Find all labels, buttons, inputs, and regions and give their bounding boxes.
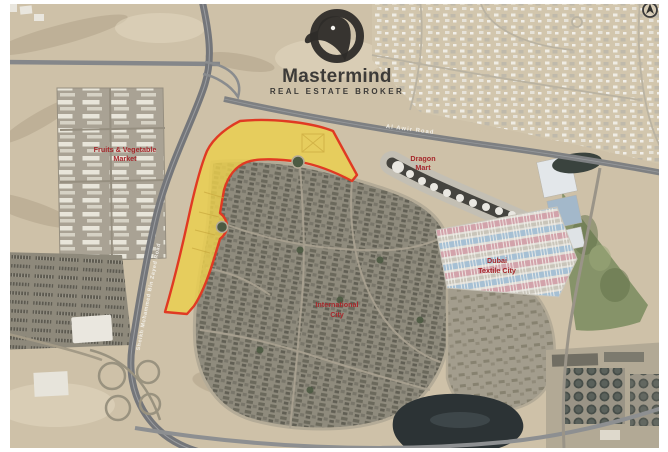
- label-international-city-line1: International: [315, 300, 358, 309]
- brand-name: Mastermind: [282, 66, 392, 87]
- brand-tagline: REAL ESTATE BROKER: [270, 87, 404, 96]
- brand-text: Mastermind REAL ESTATE BROKER: [270, 66, 404, 96]
- real-estate-map-image: Al Awir Road Sheikh Mohammed Bin Zayed R…: [0, 0, 668, 452]
- label-textile-city-line2: Textile City: [478, 266, 516, 275]
- international-city-area: [194, 161, 453, 429]
- treatment-tanks-west: [565, 368, 625, 424]
- label-market-line2: Market: [113, 154, 137, 163]
- lake-reflection: [430, 412, 490, 428]
- road-top: [0, 62, 220, 64]
- label-dragon-mart-line2: Mart: [415, 163, 431, 172]
- label-textile-city-line1: Dubai: [487, 256, 507, 265]
- label-dragon-mart-line1: Dragon: [410, 154, 435, 163]
- label-international-city-line2: City: [330, 310, 344, 319]
- falcon-eye: [331, 26, 335, 30]
- compass-icon: [643, 3, 657, 17]
- label-market-line1: Fruits & Vegetable: [94, 145, 157, 154]
